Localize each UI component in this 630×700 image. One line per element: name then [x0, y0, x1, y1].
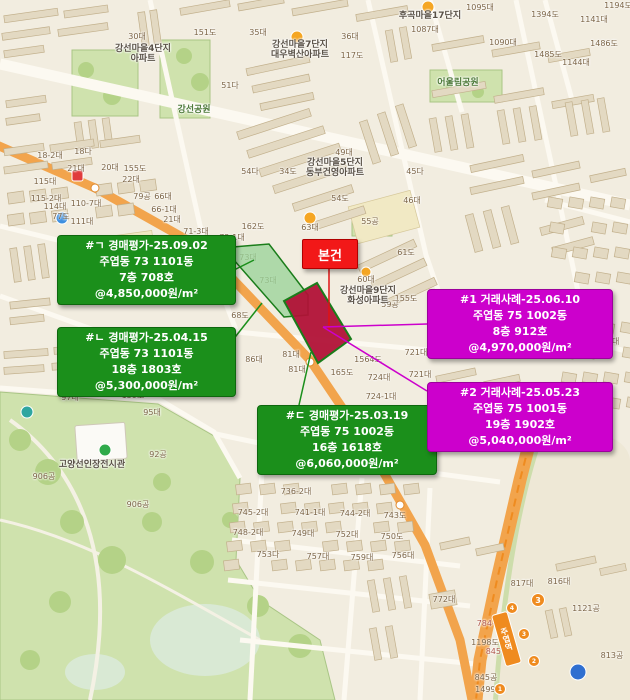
poi-icon — [304, 212, 316, 224]
building — [226, 540, 242, 552]
building — [4, 348, 48, 358]
building — [4, 8, 58, 22]
building — [497, 110, 510, 145]
building — [2, 27, 51, 41]
building — [379, 483, 395, 495]
building — [51, 187, 68, 200]
callout-unit-price: @5,300,000원/m² — [59, 378, 234, 394]
building — [612, 222, 628, 234]
appraisal-callout-3[interactable]: #ㄷ 경매평가-25.03.19 주엽동 75 1002동 16층 1618호 … — [257, 405, 437, 475]
callout-header: #ㄱ 경매평가-25.09.02 — [59, 238, 234, 254]
subject-marker[interactable]: 본건 — [302, 239, 358, 269]
callout-unit-price: @6,060,000원/m² — [259, 456, 435, 472]
building — [250, 540, 266, 552]
building — [356, 6, 408, 22]
building — [483, 210, 501, 249]
subway-exit-icon: 3 — [518, 628, 530, 640]
building — [246, 55, 310, 75]
building — [52, 157, 93, 169]
building — [138, 12, 150, 47]
building — [513, 108, 526, 143]
building — [292, 185, 353, 212]
callout-floor-unit: 7층 708호 — [59, 270, 234, 286]
building — [277, 521, 293, 533]
bus-stop-icon — [91, 184, 99, 192]
building — [624, 372, 630, 384]
transaction-callout-1[interactable]: #1 거래사례-25.06.10 주엽동 75 1002동 8층 912호 @4… — [427, 289, 613, 359]
building — [58, 23, 108, 37]
appraisal-callout-2[interactable]: #ㄴ 경매평가-25.04.15 주엽동 73 1101동 18층 1803호 … — [57, 327, 236, 397]
callout-header: #2 거래사례-25.05.23 — [429, 385, 611, 401]
building — [238, 0, 285, 11]
building — [271, 559, 287, 571]
building — [232, 502, 248, 514]
building — [295, 559, 311, 571]
building — [590, 168, 627, 182]
subway-line3-icon: 3 — [531, 593, 545, 607]
bus-stop-icon — [306, 358, 314, 366]
building — [95, 205, 112, 218]
building — [429, 118, 442, 153]
callout-floor-unit: 18층 1803호 — [59, 362, 234, 378]
building — [64, 5, 109, 18]
building — [253, 521, 269, 533]
building — [614, 247, 630, 259]
callout-unit-price: @4,970,000원/m² — [429, 340, 611, 356]
building — [274, 540, 290, 552]
building — [436, 368, 477, 383]
building — [283, 483, 299, 495]
building — [7, 191, 24, 204]
exhibition-hall — [75, 422, 127, 461]
attraction-poi-icon — [99, 444, 111, 456]
building — [348, 190, 420, 243]
building — [4, 45, 45, 57]
poi-icon — [361, 267, 371, 277]
building — [292, 0, 348, 16]
appraisal-callout-1[interactable]: #ㄱ 경매평가-25.09.02 주엽동 73 1101동 7층 708호 @4… — [57, 235, 236, 305]
building — [229, 521, 245, 533]
map-canvas[interactable]: 30대151도35대36대117도51다1095대1394도1141대1194도… — [0, 0, 630, 700]
hospital-poi-icon — [72, 170, 83, 181]
building — [6, 95, 47, 107]
building — [492, 42, 540, 57]
building — [399, 576, 411, 609]
building — [394, 540, 410, 552]
building — [548, 48, 591, 62]
building — [620, 322, 630, 334]
building — [385, 30, 397, 63]
building — [370, 540, 386, 552]
callout-address: 주엽동 73 1101동 — [59, 254, 234, 270]
building — [352, 502, 368, 514]
building — [445, 116, 458, 151]
building — [150, 10, 162, 45]
building — [565, 102, 578, 137]
callout-header: #1 거래사례-25.06.10 — [429, 292, 611, 308]
building — [589, 197, 605, 209]
building — [280, 502, 296, 514]
building — [591, 222, 607, 234]
bus-stop-icon — [396, 501, 404, 509]
building — [367, 559, 383, 571]
poi-icon — [56, 212, 68, 224]
building — [301, 521, 317, 533]
building — [319, 559, 335, 571]
building — [322, 540, 338, 552]
building — [593, 247, 609, 259]
building — [117, 203, 134, 216]
building — [331, 483, 347, 495]
callout-floor-unit: 19층 1902호 — [429, 417, 611, 433]
building — [223, 559, 239, 571]
callout-address: 주엽동 75 1002동 — [259, 424, 435, 440]
building — [4, 365, 44, 375]
building — [7, 213, 24, 226]
building — [572, 247, 588, 259]
building — [325, 521, 341, 533]
building — [304, 502, 320, 514]
building — [24, 246, 36, 281]
building — [6, 114, 41, 126]
building — [376, 502, 392, 514]
callout-unit-price: @4,850,000원/m² — [59, 286, 234, 302]
building — [440, 537, 471, 550]
building — [10, 314, 45, 325]
subway-exit-icon: 2 — [528, 655, 540, 667]
building — [38, 244, 50, 279]
building — [117, 181, 134, 194]
callout-address: 주엽동 75 1002동 — [429, 308, 611, 324]
building — [595, 272, 611, 284]
building — [461, 114, 474, 149]
building — [29, 189, 46, 202]
building — [4, 161, 49, 174]
building — [383, 578, 395, 611]
poi-icon — [291, 31, 303, 43]
building — [397, 521, 413, 533]
callout-header: #ㄷ 경매평가-25.03.19 — [259, 408, 435, 424]
building — [10, 248, 22, 283]
building — [403, 483, 419, 495]
building — [343, 559, 359, 571]
subway-exit-icon: 4 — [506, 602, 518, 614]
transaction-callout-2[interactable]: #2 거래사례-25.05.23 주엽동 75 1001동 19층 1902호 … — [427, 382, 613, 452]
building — [551, 247, 567, 259]
building — [259, 483, 275, 495]
building — [50, 139, 95, 152]
building — [328, 502, 344, 514]
callout-header: #ㄴ 경매평가-25.04.15 — [59, 330, 234, 346]
building — [235, 483, 251, 495]
building — [346, 540, 362, 552]
building — [597, 98, 610, 133]
mart-poi-icon — [570, 664, 586, 680]
building — [622, 347, 630, 359]
callout-unit-price: @5,040,000원/m² — [429, 433, 611, 449]
building — [568, 197, 584, 209]
building — [616, 272, 630, 284]
building — [547, 197, 563, 209]
building — [581, 100, 594, 135]
building — [252, 74, 310, 93]
callout-floor-unit: 8층 912호 — [429, 324, 611, 340]
building — [574, 272, 590, 284]
building — [260, 92, 314, 110]
building — [501, 206, 519, 245]
building — [29, 211, 46, 224]
subway-exit-icon: 1 — [494, 683, 506, 695]
building — [399, 27, 411, 60]
building — [139, 179, 156, 192]
building — [180, 0, 230, 15]
fountain-poi-icon — [21, 406, 33, 418]
building — [465, 214, 483, 253]
callout-address: 주엽동 75 1001동 — [429, 401, 611, 417]
building — [373, 521, 389, 533]
callout-address: 주엽동 73 1101동 — [59, 346, 234, 362]
poi-icon — [422, 1, 434, 13]
callout-floor-unit: 16층 1618호 — [259, 440, 435, 456]
building — [610, 197, 626, 209]
building — [626, 397, 630, 409]
building — [355, 483, 371, 495]
building — [549, 222, 565, 234]
